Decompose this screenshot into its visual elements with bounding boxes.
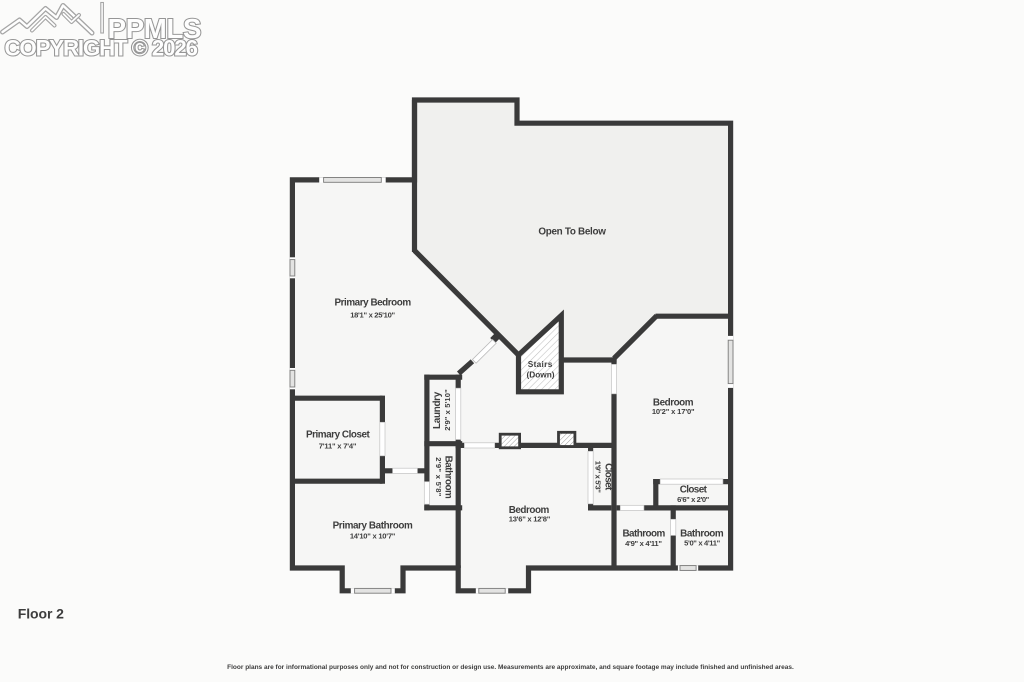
svg-text:7'11" x 7'4": 7'11" x 7'4" [319,442,357,451]
svg-text:Primary Bathroom: Primary Bathroom [333,521,413,532]
svg-text:COPYRIGHT © 2026: COPYRIGHT © 2026 [5,35,198,60]
svg-text:(Down): (Down) [526,370,554,380]
svg-text:Open To Below: Open To Below [538,227,606,238]
svg-text:2'9" x 5'10": 2'9" x 5'10" [443,389,452,431]
svg-text:4'9" x 4'11": 4'9" x 4'11" [625,539,662,548]
svg-text:Stairs: Stairs [528,359,553,369]
svg-text:14'10" x 10'7": 14'10" x 10'7" [350,532,396,541]
svg-text:Floor plans are for informatio: Floor plans are for informational purpos… [227,664,794,671]
svg-text:Primary Closet: Primary Closet [306,429,371,440]
svg-text:Floor 2: Floor 2 [18,606,64,622]
svg-text:13'6" x 12'8": 13'6" x 12'8" [509,515,551,524]
svg-text:Laundry: Laundry [432,391,443,429]
svg-text:2'9" x 5'8": 2'9" x 5'8" [434,457,443,497]
svg-text:5'0" x 4'11": 5'0" x 4'11" [684,539,721,548]
svg-text:Closet: Closet [602,463,613,491]
svg-text:6'6" x 2'0": 6'6" x 2'0" [677,495,710,504]
svg-text:Bathroom: Bathroom [443,456,454,499]
svg-text:1'9" x 5'3": 1'9" x 5'3" [594,461,603,494]
svg-text:18'1" x 25'10": 18'1" x 25'10" [350,311,395,320]
svg-text:Primary Bedroom: Primary Bedroom [335,298,412,309]
svg-text:10'2" x 17'0": 10'2" x 17'0" [652,407,695,416]
svg-text:Closet: Closet [680,484,708,495]
